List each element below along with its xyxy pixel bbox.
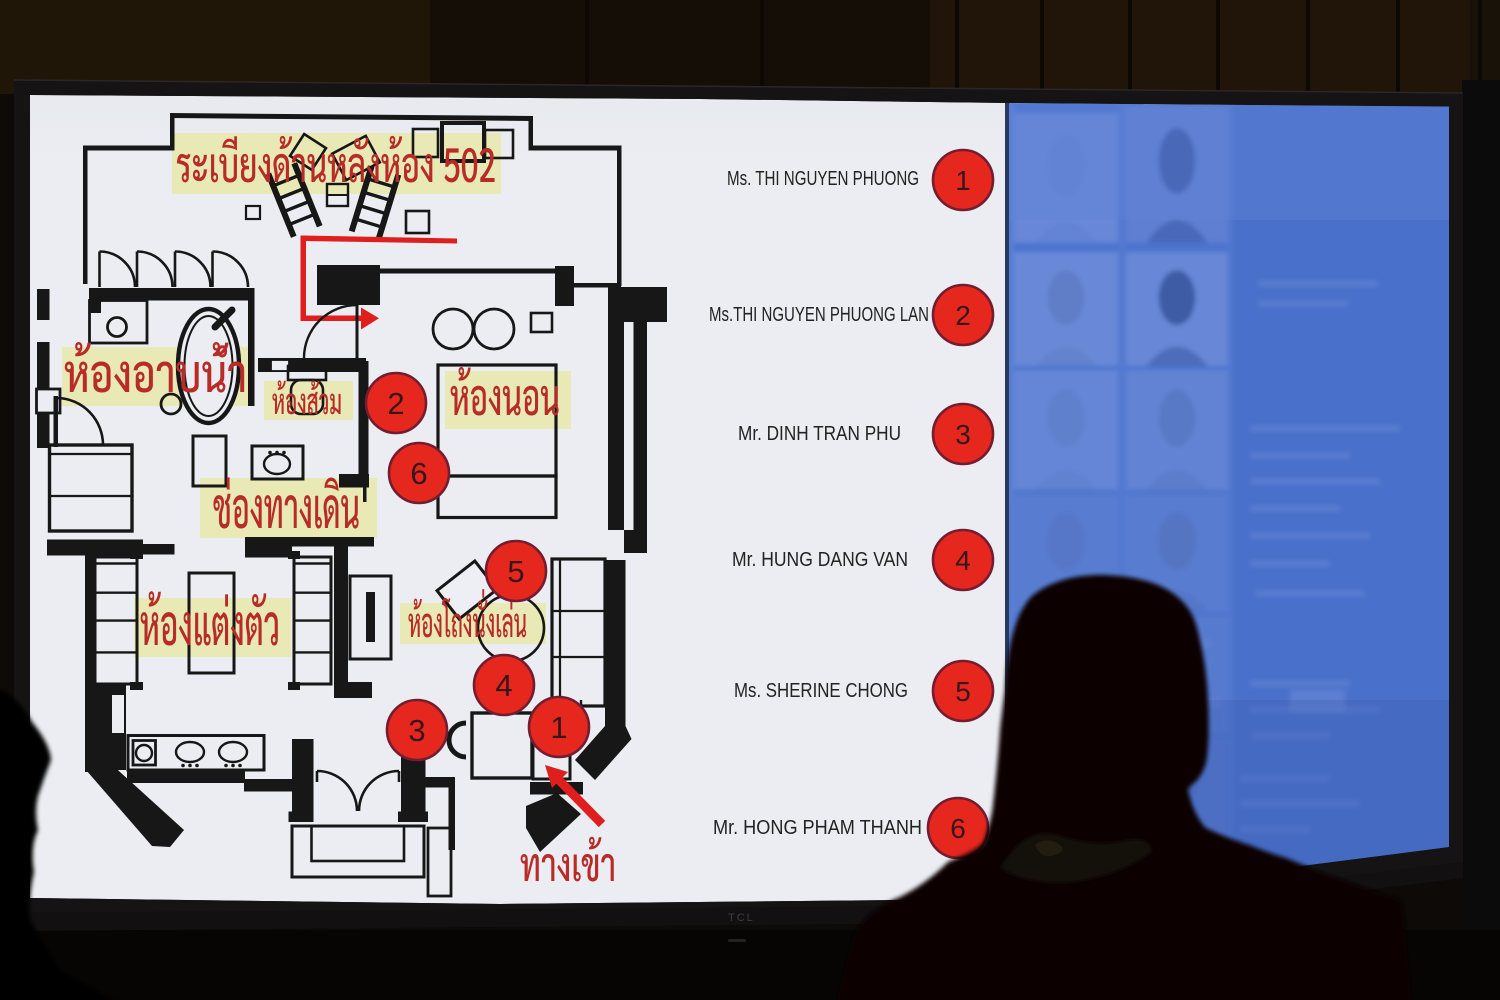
svg-text:4: 4 bbox=[495, 668, 512, 703]
svg-text:3: 3 bbox=[955, 419, 971, 450]
svg-text:1: 1 bbox=[550, 710, 567, 745]
svg-text:3: 3 bbox=[408, 713, 425, 748]
svg-text:5: 5 bbox=[955, 676, 971, 707]
svg-text:Ms. SHERINE CHONG: Ms. SHERINE CHONG bbox=[734, 679, 908, 702]
svg-text:Ms. THI NGUYEN PHUONG: Ms. THI NGUYEN PHUONG bbox=[727, 167, 919, 190]
svg-text:5: 5 bbox=[507, 554, 524, 589]
svg-text:4: 4 bbox=[955, 545, 971, 576]
svg-text:6: 6 bbox=[950, 813, 966, 844]
svg-text:Mr. HONG PHAM THANH: Mr. HONG PHAM THANH bbox=[713, 816, 922, 839]
svg-text:Ms.THI NGUYEN PHUONG LAN: Ms.THI NGUYEN PHUONG LAN bbox=[709, 303, 929, 326]
svg-text:2: 2 bbox=[387, 386, 404, 421]
svg-text:6: 6 bbox=[410, 456, 427, 491]
svg-text:Mr. DINH TRAN PHU: Mr. DINH TRAN PHU bbox=[738, 422, 901, 445]
svg-text:Mr. HUNG DANG VAN: Mr. HUNG DANG VAN bbox=[732, 548, 908, 571]
svg-text:1: 1 bbox=[955, 165, 971, 196]
svg-text:2: 2 bbox=[955, 300, 971, 331]
svg-text:TCL: TCL bbox=[728, 912, 755, 924]
